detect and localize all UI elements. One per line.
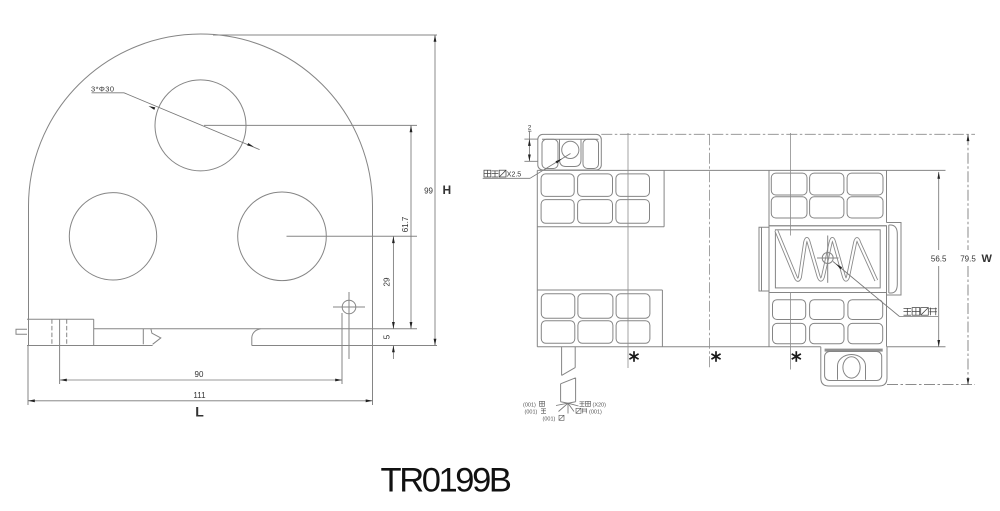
svg-text:79.5: 79.5 [960,255,976,264]
svg-text:99: 99 [424,187,433,196]
svg-text:29: 29 [383,277,392,286]
svg-text:TR0199B: TR0199B [381,462,511,500]
svg-text:3*Φ30: 3*Φ30 [91,85,114,94]
svg-text:2: 2 [528,125,532,132]
svg-text:(001): (001) [523,403,536,409]
svg-text:(001): (001) [543,417,556,423]
svg-text:X2.5: X2.5 [507,172,522,179]
svg-text:L: L [195,404,204,420]
svg-text:H: H [443,183,452,197]
svg-text:5: 5 [383,334,392,339]
svg-text:(001): (001) [525,410,538,416]
svg-text:W: W [982,253,993,265]
svg-text:61.7: 61.7 [401,216,410,232]
svg-text:90: 90 [195,370,204,379]
svg-text:(001): (001) [589,410,602,416]
svg-text:111: 111 [193,391,206,400]
svg-text:(X20): (X20) [593,403,607,409]
svg-text:56.5: 56.5 [931,255,947,264]
